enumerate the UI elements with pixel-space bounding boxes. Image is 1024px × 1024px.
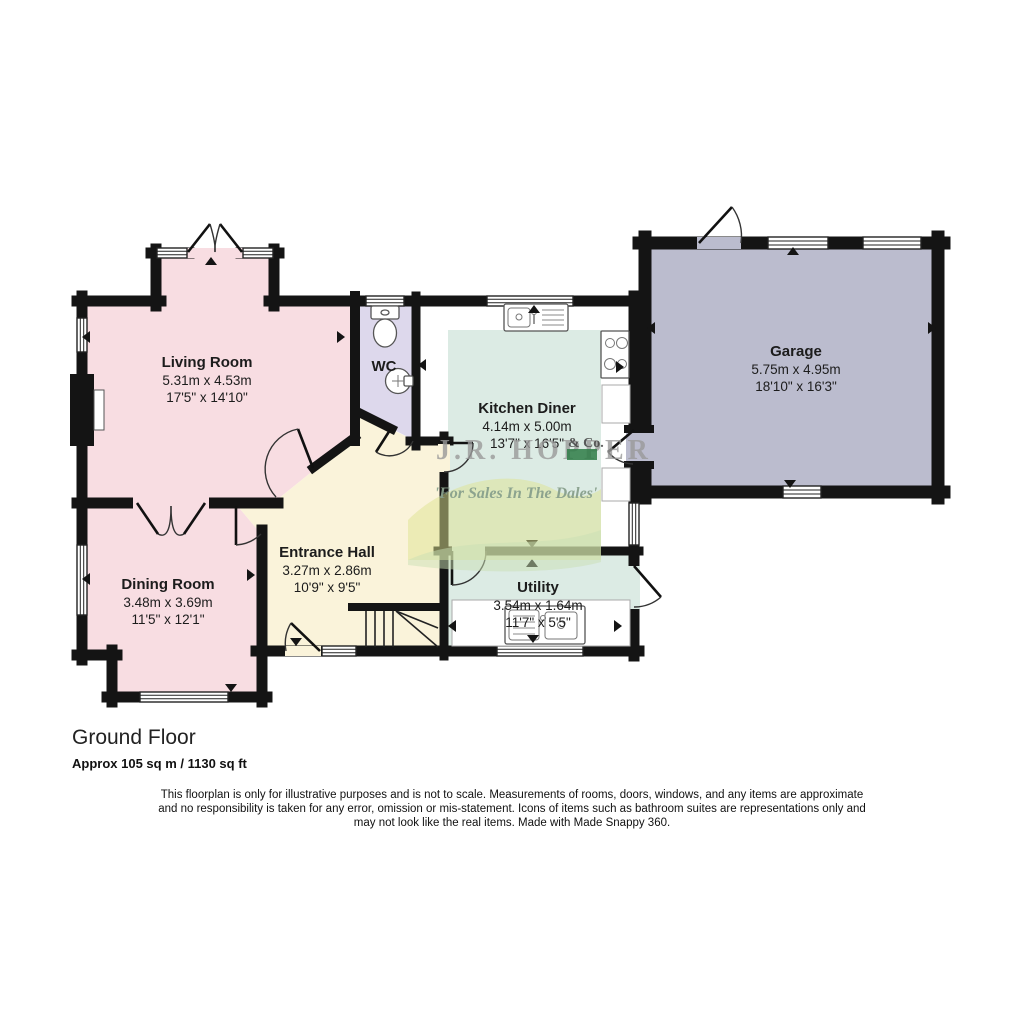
dining-room-metric: 3.48m x 3.69m — [123, 595, 212, 610]
garage-label: Garage — [770, 343, 822, 360]
utility-imperial: 11'7" x 5'5" — [505, 615, 571, 630]
dining-room-imperial: 11'5" x 12'1" — [131, 612, 204, 627]
toilet-icon — [371, 306, 399, 347]
utility-metric: 3.54m x 1.64m — [493, 598, 582, 613]
window — [322, 646, 356, 656]
utility-label: Utility — [517, 579, 559, 596]
garage-imperial: 18'10" x 16'3" — [755, 379, 837, 394]
entrance-hall-imperial: 10'9" x 9'5" — [294, 580, 361, 595]
floor-title: Ground Floor — [72, 726, 196, 750]
wc-label: WC — [372, 358, 397, 375]
window — [863, 237, 921, 249]
kitchen-diner-metric: 4.14m x 5.00m — [482, 419, 571, 434]
watermark-name: J.R. HOPPER — [436, 435, 652, 466]
living-room-label: Living Room — [162, 354, 253, 371]
entrance-hall-label: Entrance Hall — [279, 544, 375, 561]
disclaimer: This floorplan is only for illustrative … — [0, 788, 1024, 830]
window — [768, 237, 828, 249]
window — [140, 692, 228, 702]
window — [366, 296, 404, 306]
hob-icon — [601, 331, 629, 378]
dining-room-label: Dining Room — [121, 576, 214, 593]
window — [629, 503, 639, 545]
window — [243, 248, 273, 258]
watermark-tagline: 'For Sales In The Dales' — [435, 485, 598, 502]
disclaimer-line: This floorplan is only for illustrative … — [0, 788, 1024, 802]
garage-metric: 5.75m x 4.95m — [751, 362, 840, 377]
watermark-suffix: & Co. — [568, 436, 604, 451]
floor-area: Approx 105 sq m / 1130 sq ft — [72, 756, 247, 771]
kitchen-diner-label: Kitchen Diner — [478, 400, 576, 417]
disclaimer-line: may not look like the real items. Made w… — [0, 816, 1024, 830]
floorplan-drawing: Living Room 5.31m x 4.53m 17'5" x 14'10"… — [0, 0, 1024, 1024]
entrance-hall-metric: 3.27m x 2.86m — [282, 563, 371, 578]
living-room-metric: 5.31m x 4.53m — [162, 373, 251, 388]
window — [157, 248, 187, 258]
disclaimer-line: and no responsibility is taken for any e… — [0, 802, 1024, 816]
living-room-imperial: 17'5" x 14'10" — [166, 390, 248, 405]
bay-french-doors — [188, 224, 242, 252]
window — [783, 486, 821, 498]
floorplan-page: Living Room 5.31m x 4.53m 17'5" x 14'10"… — [0, 0, 1024, 1024]
window — [497, 646, 583, 656]
